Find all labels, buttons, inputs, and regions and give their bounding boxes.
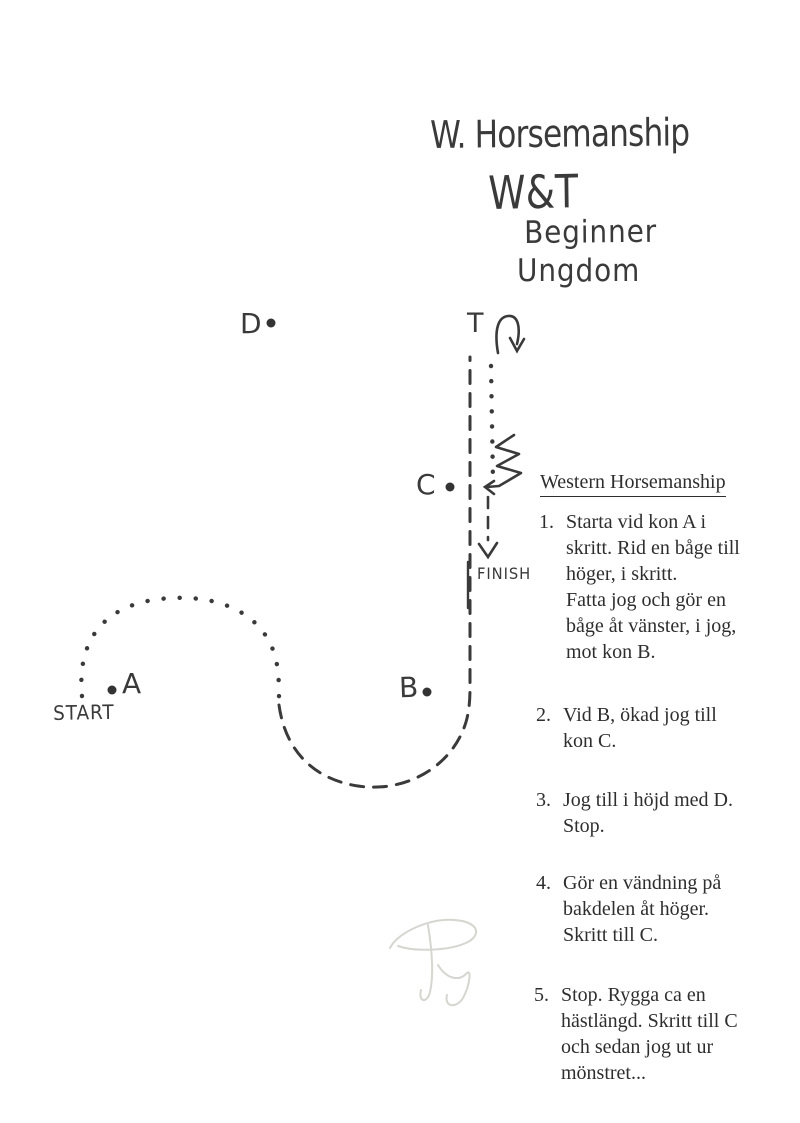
turn-marker-label: T: [467, 310, 484, 337]
instruction-item-1: 1. Starta vid kon A i skritt. Rid en båg…: [539, 509, 791, 665]
cone-d-label: D: [240, 310, 262, 338]
instruction-number: 5.: [534, 982, 561, 1086]
instruction-item-5: 5. Stop. Rygga ca en hästlängd. Skritt t…: [534, 982, 786, 1086]
cone-b-dot: [423, 688, 432, 697]
instruction-number: 1.: [539, 509, 566, 665]
scanned-pattern-sheet: { "title": { "line1": "W. Horsemanship",…: [0, 0, 800, 1123]
title-line-1: W. Horsemanship: [430, 113, 689, 154]
instruction-number: 4.: [536, 870, 563, 948]
instruction-number: 3.: [536, 787, 563, 839]
jog-dashed-path: [279, 357, 470, 787]
instruction-text: Vid B, ökad jog till kon C.: [563, 702, 717, 754]
cone-d-dot: [267, 319, 276, 328]
instruction-number: 2.: [536, 702, 563, 754]
cone-a-dot: [108, 686, 117, 695]
cone-b-label: B: [399, 674, 419, 703]
instruction-item-4: 4. Gör en vändning på bakdelen åt höger.…: [536, 870, 788, 948]
title-line-2: W&T: [488, 168, 578, 216]
instruction-item-2: 2. Vid B, ökad jog till kon C.: [536, 702, 788, 754]
finish-arrowhead: [479, 543, 497, 557]
cone-a-label: A: [122, 670, 141, 698]
instruction-item-3: 3. Jog till i höjd med D. Stop.: [536, 787, 788, 839]
instruction-text: Gör en vändning på bakdelen åt höger. Sk…: [563, 870, 721, 948]
instruction-text: Jog till i höjd med D. Stop.: [563, 787, 733, 839]
walk-dotted-arc: [81, 598, 279, 700]
start-label: START: [53, 702, 115, 723]
instruction-text: Stop. Rygga ca en hästlängd. Skritt till…: [561, 982, 738, 1086]
instructions-heading: Western Horsemanship: [540, 471, 726, 497]
cone-c-label: C: [416, 471, 436, 499]
title-line-4: Ungdom: [517, 256, 640, 287]
cone-c-dot: [446, 483, 455, 492]
signature-scribble: [390, 920, 476, 1005]
finish-label: FINISH: [477, 566, 531, 582]
instruction-text: Starta vid kon A i skritt. Rid en båge t…: [566, 509, 740, 665]
title-line-3: Beginner: [524, 217, 657, 249]
walk-dotted-line: [491, 366, 493, 480]
